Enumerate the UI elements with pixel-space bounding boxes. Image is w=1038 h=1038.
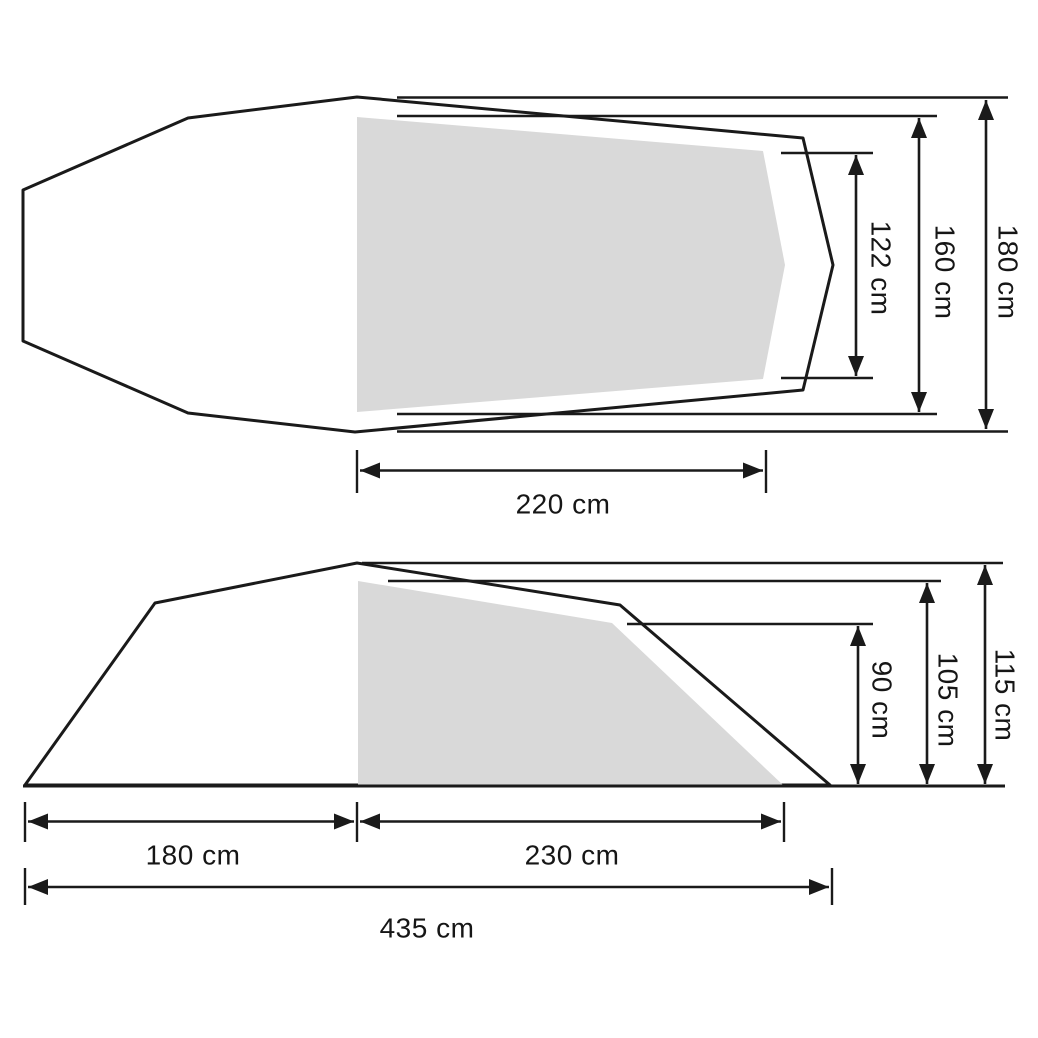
- dim-inner-front-width: 160 cm: [919, 118, 961, 412]
- dim-inner-rear-width: 122 cm: [856, 155, 897, 376]
- dim-inner-front-height: 105 cm: [927, 583, 964, 784]
- dim-outer-max-width: 180 cm: [986, 100, 1024, 429]
- dim-inner-rear-height: 90 cm: [858, 626, 898, 784]
- dim-label: 180 cm: [993, 225, 1024, 320]
- dim-label: 230 cm: [525, 840, 620, 871]
- dim-label: 90 cm: [867, 661, 898, 740]
- dim-label: 105 cm: [933, 653, 964, 748]
- top-view: 122 cm 160 cm 180 cm 220 cm: [23, 97, 1024, 520]
- dim-label: 115 cm: [990, 649, 1021, 742]
- tent-dimension-diagram: 122 cm 160 cm 180 cm 220 cm 90 cm: [0, 0, 1038, 1038]
- dim-label: 160 cm: [930, 225, 961, 320]
- side-view: 90 cm 105 cm 115 cm 180 cm 230 cm 435 cm: [23, 563, 1021, 944]
- dim-inner-length-side-view: 230 cm: [360, 802, 784, 871]
- dim-vestibule-length: 180 cm: [25, 802, 357, 871]
- dim-inner-length-top-view: 220 cm: [357, 450, 766, 520]
- dim-peak-height: 115 cm: [985, 565, 1021, 784]
- diagram-canvas: 122 cm 160 cm 180 cm 220 cm 90 cm: [0, 0, 1038, 1038]
- dim-label: 122 cm: [866, 221, 897, 316]
- dim-label: 180 cm: [146, 840, 241, 871]
- dim-label: 435 cm: [380, 913, 475, 944]
- top-view-inner-tent-floor: [357, 117, 785, 412]
- dim-total-length: 435 cm: [25, 868, 832, 944]
- dim-label: 220 cm: [516, 489, 611, 520]
